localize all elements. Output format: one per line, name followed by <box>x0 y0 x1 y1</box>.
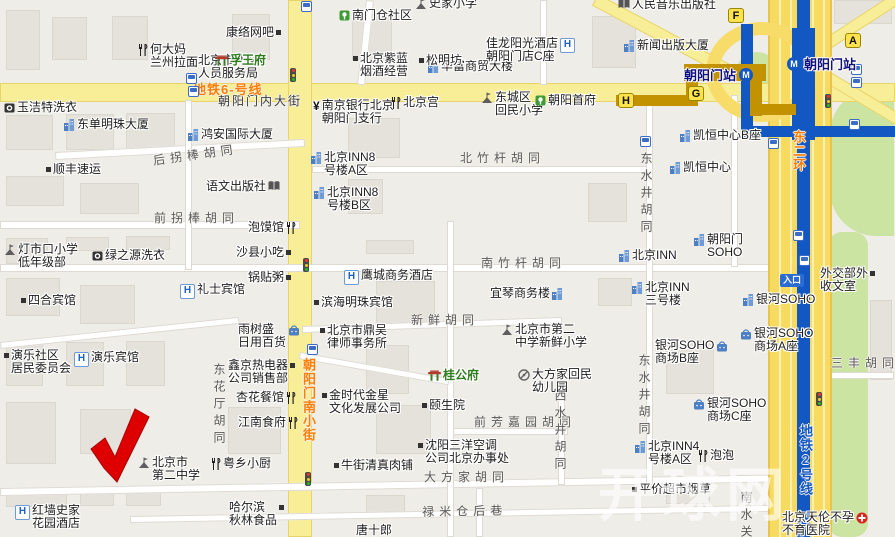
street-label: 大方家胡同 <box>424 468 509 485</box>
fork-icon <box>698 450 708 465</box>
poi-label[interactable]: 南门仓社区 <box>339 9 412 24</box>
bus-stop-icon <box>799 255 810 266</box>
poi-label[interactable]: 大方家回民幼儿园 <box>518 368 592 394</box>
poi-label[interactable]: 桂公府 <box>428 369 479 384</box>
hotel-icon: H <box>180 284 195 299</box>
traffic-light-icon <box>290 68 296 82</box>
bag-icon <box>693 398 705 423</box>
street-label: 东水井胡同 <box>636 354 653 439</box>
metro-station-label[interactable]: 朝阳门站M <box>684 65 753 84</box>
street-label: 西水井胡同 <box>552 389 569 474</box>
poi-text: 松明坊 <box>426 54 462 67</box>
metro-line-2 <box>741 126 895 137</box>
poi-text: 东单明珠大厦 <box>77 118 149 131</box>
dot-icon <box>632 487 637 492</box>
bus-stop-icon <box>188 86 199 97</box>
building-icon <box>619 250 630 265</box>
poi-label[interactable]: H红墙史家花园酒店 <box>15 504 80 530</box>
poi-text: 绿之源洗衣 <box>105 249 165 262</box>
poi-label[interactable]: 沙县小吃 <box>236 246 291 259</box>
poi-text: 文化发展公司 <box>329 402 401 415</box>
poi-label[interactable]: 沈阳三洋空调公司北京办事处 <box>418 439 509 465</box>
poi-text: 玉洁特洗衣 <box>17 101 77 114</box>
poi-label[interactable]: 唐十郎 <box>356 524 392 537</box>
poi-text: 桂公府 <box>443 369 479 382</box>
building-block <box>598 278 632 306</box>
poi-text: 兰州拉面 <box>150 56 198 69</box>
fork-icon <box>286 392 296 407</box>
street-label: 东水井胡同 <box>638 152 655 237</box>
poi-text: 杏花餐馆 <box>236 391 284 404</box>
poi-text: 号楼A区 <box>648 453 699 466</box>
dot-icon <box>422 403 427 408</box>
poi-text: 四合宾馆 <box>28 294 76 307</box>
poi-label[interactable]: 绿之源洗衣 <box>92 249 165 264</box>
poi-text: 凯恒中心 <box>683 161 731 174</box>
street-label: 北竹杆胡同 <box>460 149 545 166</box>
poi-label[interactable]: 宜琴商务楼 <box>490 287 563 303</box>
traffic-light-icon <box>303 258 309 272</box>
street-label: 朝阳门南小街 <box>299 358 318 442</box>
poi-label[interactable]: 杏花餐馆 <box>236 391 296 407</box>
building-block <box>80 183 139 214</box>
poi-label[interactable]: 凯恒中心B座 <box>680 129 761 145</box>
street-label: 南竹杆胡同 <box>481 254 566 271</box>
poi-text: 日用百货 <box>238 336 286 349</box>
hotel-icon: H <box>15 505 30 520</box>
hotel-icon: H <box>560 38 575 53</box>
station-name: 朝阳门站 <box>804 54 856 73</box>
poi-label[interactable]: 北京INN8号楼A区 <box>311 151 375 177</box>
poi-text: 鹰城商务酒店 <box>361 269 433 282</box>
book-icon <box>618 0 630 12</box>
poi-text: 北京宫 <box>403 96 439 109</box>
poi-label[interactable]: 银河SOHO商场C座 <box>693 397 766 423</box>
metro-station-label[interactable]: M朝阳门站 <box>787 54 856 73</box>
metro-line-2 <box>792 28 815 140</box>
traffic-light-icon <box>305 472 311 486</box>
poi-text: 号楼A区 <box>324 164 375 177</box>
poi-text: 顺丰速运 <box>53 163 101 176</box>
dot-icon <box>279 505 284 510</box>
mansion-icon <box>215 55 228 69</box>
street-label: 东花厅胡同 <box>211 363 228 448</box>
building-block <box>366 240 414 254</box>
building-icon <box>64 119 75 134</box>
fork-icon <box>138 44 148 69</box>
poi-label[interactable]: 银河SOHO商场B座 <box>655 339 728 365</box>
poi-text: 凯恒中心B座 <box>693 129 761 142</box>
fork-icon <box>391 97 401 112</box>
poi-label[interactable]: 灯市口小学低年级部 <box>4 243 78 269</box>
poi-text: 史家小学 <box>429 0 477 10</box>
poi-text: 朝阳门店C座 <box>486 50 558 63</box>
dot-icon <box>418 443 423 448</box>
bag-icon <box>716 340 728 365</box>
poi-label[interactable]: 人民音乐出版社 <box>618 0 716 12</box>
dot-icon <box>320 328 325 333</box>
poi-text: 烟酒经营 <box>360 65 408 78</box>
metro-logo-icon: M <box>739 68 753 82</box>
building-block <box>6 402 56 464</box>
dot-icon <box>290 363 295 368</box>
metro-exit-badge: H <box>618 93 634 108</box>
poi-label[interactable]: 北京INN三号楼 <box>632 281 690 307</box>
poi-text: 秋林食品 <box>229 514 277 527</box>
poi-label[interactable]: 粤乡小厨 <box>211 457 271 473</box>
building-icon <box>314 187 325 212</box>
metro-exit-badge: F <box>728 8 744 23</box>
dot-icon <box>419 58 424 63</box>
school-icon <box>481 92 493 117</box>
bus-stop-icon <box>768 138 779 149</box>
poi-text: 号楼B区 <box>327 199 378 212</box>
poi-label[interactable]: 东城区回民小学 <box>481 91 543 117</box>
building-icon <box>311 152 322 177</box>
poi-text: 鸿安国际大厦 <box>201 128 273 141</box>
entrance-badge: 入口 <box>780 274 804 287</box>
poi-text: 朝阳首府 <box>548 94 596 107</box>
building-block <box>6 176 64 206</box>
school-icon <box>415 0 427 13</box>
poi-text: 银河SOHO <box>756 293 815 306</box>
dot-icon <box>276 30 281 35</box>
poi-label[interactable]: 北京天伦不孕不育医院 <box>782 511 868 537</box>
poi-text: 中学新鲜小学 <box>515 336 587 349</box>
poi-label[interactable]: 北京市第二中学新鲜小学 <box>501 323 587 349</box>
poi-label[interactable]: 颐生院 <box>422 399 465 412</box>
poi-label[interactable]: 松明坊 <box>419 54 462 67</box>
building-block <box>52 17 87 60</box>
dot-icon <box>322 393 327 398</box>
book-icon <box>268 181 280 194</box>
poi-text: 不育医院 <box>782 524 854 537</box>
poi-label[interactable]: 孚王府 <box>215 54 266 69</box>
bus-stop-icon <box>851 77 862 88</box>
poi-text: 锅贴粥 <box>248 271 284 284</box>
poi-label[interactable]: 北京宫 <box>391 96 439 112</box>
poi-text: 牛街清真肉铺 <box>341 459 413 472</box>
traffic-light-icon <box>816 392 822 406</box>
poi-text: 花园酒店 <box>32 517 80 530</box>
dot-icon <box>4 353 9 358</box>
building-icon <box>188 129 199 144</box>
dot-icon <box>286 275 291 280</box>
poi-text: 颐生院 <box>429 399 465 412</box>
bank-icon: ¥ <box>313 100 320 125</box>
poi-label[interactable]: 江南食府 <box>238 416 298 432</box>
street-label: 前拐棒胡同 <box>154 209 239 226</box>
poi-text: 商场B座 <box>655 352 714 365</box>
road <box>830 372 894 379</box>
building-icon <box>635 441 646 466</box>
poi-text: 唐十郎 <box>356 524 392 537</box>
poi-text: 低年级部 <box>18 256 78 269</box>
poi-text: 演乐宾馆 <box>91 351 139 364</box>
dot-icon <box>21 298 26 303</box>
building-icon <box>743 294 754 309</box>
poi-text: 泡泡 <box>710 449 734 462</box>
building-icon <box>624 40 635 55</box>
poi-label[interactable]: 外交部外收文室 <box>820 267 875 293</box>
poi-text: 居民委员会 <box>11 362 71 375</box>
poi-text: 律师事务所 <box>327 337 387 350</box>
traffic-light-icon <box>825 94 831 108</box>
fork-icon <box>286 222 296 237</box>
map-canvas[interactable]: 开球网 华富商贸大楼康络网吧北京市外交人员服务局何大妈兰州拉面孚王府玉洁特洗衣东… <box>0 0 895 537</box>
poi-label[interactable]: 康络网吧 <box>226 26 281 39</box>
poi-text: 人民音乐出版社 <box>632 0 716 11</box>
poi-label[interactable]: H礼士宾馆 <box>180 283 245 299</box>
poi-label[interactable]: 顺丰速运 <box>46 163 101 176</box>
building-icon <box>680 130 691 145</box>
building-icon <box>694 234 705 259</box>
poi-label[interactable]: 北京INN4号楼A区 <box>635 440 699 466</box>
poi-text: 礼士宾馆 <box>197 283 245 296</box>
poi-label[interactable]: 朝阳门SOHO <box>694 233 743 259</box>
poi-label[interactable]: 滨海明珠宾馆 <box>314 296 393 309</box>
poi-label[interactable]: 鸿安国际大厦 <box>188 128 273 144</box>
street-label: 地铁6-号线 <box>193 79 263 98</box>
selected-location-marker[interactable] <box>88 408 152 489</box>
poi-label[interactable]: 哈尔滨秋林食品 <box>229 501 284 527</box>
metro-exit-badge: A <box>845 33 861 48</box>
poi-label[interactable]: 银河SOHO商场A座 <box>740 327 813 353</box>
poi-label[interactable]: 凯恒中心 <box>670 161 731 177</box>
poi-label[interactable]: 北京市鼎吴律师事务所 <box>320 324 387 350</box>
metro-line-6 <box>750 104 796 115</box>
bus-stop-icon <box>849 119 860 130</box>
poi-label[interactable]: 鑫京热电器公司销售部 <box>228 359 295 385</box>
poi-label[interactable]: 演乐社区居民委员会 <box>4 349 71 375</box>
bus-stop-icon <box>640 136 651 147</box>
poi-label[interactable]: 朝阳首府 <box>535 94 596 109</box>
poi-label[interactable]: 玉洁特洗衣 <box>4 101 77 116</box>
school-icon <box>4 244 16 269</box>
building-icon <box>552 288 563 303</box>
street-label: 南水关 <box>738 491 755 537</box>
building-icon <box>632 282 643 307</box>
poi-label[interactable]: 语文出版社 <box>206 180 280 194</box>
bus-stop-icon <box>307 344 318 355</box>
building-block <box>6 115 53 150</box>
poi-text: 北京INN <box>632 249 677 262</box>
poi-label[interactable]: 锅贴粥 <box>248 271 291 284</box>
poi-label[interactable]: 何大妈兰州拉面 <box>138 43 198 69</box>
dot-icon <box>870 271 875 276</box>
laundry-icon <box>92 250 103 264</box>
poi-text: 康络网吧 <box>226 26 274 39</box>
poi-label[interactable]: 北京INN8号楼B区 <box>314 186 378 212</box>
bus-stop-icon <box>301 1 312 12</box>
building-block <box>588 183 627 222</box>
poi-text: 商场A座 <box>754 340 813 353</box>
metro-logo-icon: M <box>787 57 801 71</box>
poi-label[interactable]: 新闻出版大厦 <box>624 39 709 55</box>
poi-label[interactable]: H鹰城商务酒店 <box>344 269 433 285</box>
poi-text: 商场C座 <box>707 410 766 423</box>
poi-text: 孚王府 <box>230 54 266 67</box>
hospital-icon <box>856 512 868 537</box>
poi-label[interactable]: 史家小学 <box>415 0 477 13</box>
poi-label[interactable]: 四合宾馆 <box>21 294 76 307</box>
dot-icon <box>46 167 51 172</box>
community-icon <box>535 95 546 109</box>
poi-label[interactable]: 泡馍馆 <box>248 221 296 237</box>
poi-text: 沙县小吃 <box>236 246 284 259</box>
poi-label[interactable]: 东单明珠大厦 <box>64 118 149 134</box>
poi-label[interactable]: H演乐宾馆 <box>74 351 139 367</box>
poi-label[interactable]: 泡泡 <box>698 449 734 465</box>
street-label: 东二环 <box>789 130 808 172</box>
poi-text: 朝阳门支行 <box>322 112 394 125</box>
poi-text: 滨海明珠宾馆 <box>321 296 393 309</box>
bag-icon <box>288 324 300 349</box>
mansion-icon <box>428 370 441 384</box>
poi-text: 粤乡小厨 <box>223 457 271 470</box>
building-icon <box>670 162 681 177</box>
poi-text: 宜琴商务楼 <box>490 287 550 300</box>
poi-text: 江南食府 <box>238 416 286 429</box>
dot-icon <box>286 250 291 255</box>
street-label: 禄米仓后巷 <box>422 502 507 520</box>
road <box>185 100 192 270</box>
poi-text: 公司北京办事处 <box>425 452 509 465</box>
poi-text: 新闻出版大厦 <box>637 39 709 52</box>
poi-label[interactable]: 雨树盛日用百货 <box>238 323 300 349</box>
school-icon <box>501 324 513 349</box>
poi-label[interactable]: 平价超市烟草 <box>632 483 711 496</box>
fork-icon <box>211 458 221 473</box>
community-icon <box>339 10 350 24</box>
dot-icon <box>353 56 358 61</box>
hotel-icon: H <box>74 352 89 367</box>
street-label: 地铁2号线 <box>796 424 815 496</box>
poi-label[interactable]: 牛街清真肉铺 <box>334 459 413 472</box>
poi-text: 公司销售部 <box>228 372 288 385</box>
poi-label[interactable]: ¥南京银行北京朝阳门支行 <box>313 99 394 125</box>
poi-text: 南门仓社区 <box>352 9 412 22</box>
poi-text: 泡馍馆 <box>248 221 284 234</box>
poi-text: 三号楼 <box>645 294 690 307</box>
poi-text: 幼儿园 <box>532 381 592 394</box>
dot-icon <box>314 300 319 305</box>
dot-icon <box>334 463 339 468</box>
metro-exit-badge: G <box>688 86 704 101</box>
poi-label[interactable]: 佳龙阳光酒店朝阳门店C座H <box>486 37 575 63</box>
station-name: 朝阳门站 <box>684 65 736 84</box>
bag-icon <box>740 328 752 353</box>
poi-text: 第二中学 <box>152 469 200 482</box>
hotel-icon: H <box>344 270 359 285</box>
poi-label[interactable]: 金时代金星文化发展公司 <box>322 389 401 415</box>
street-label: 新鲜胡同 <box>411 311 479 328</box>
poi-label[interactable]: 银河SOHO <box>743 293 815 309</box>
street-label: 三丰胡同 <box>831 354 895 371</box>
poi-text: 平价超市烟草 <box>639 483 711 496</box>
poi-text: 语文出版社 <box>206 180 266 193</box>
kindergarten-icon <box>518 369 530 394</box>
bus-stop-icon <box>793 230 804 241</box>
building-block <box>6 10 40 70</box>
poi-text: 收文室 <box>820 280 868 293</box>
poi-label[interactable]: 北京INN <box>619 249 677 265</box>
fork-icon <box>288 417 298 432</box>
poi-label[interactable]: 北京紫蓝烟酒经营 <box>353 52 408 78</box>
laundry-icon <box>4 102 15 116</box>
poi-text: SOHO <box>707 246 743 259</box>
building-block <box>80 285 135 324</box>
